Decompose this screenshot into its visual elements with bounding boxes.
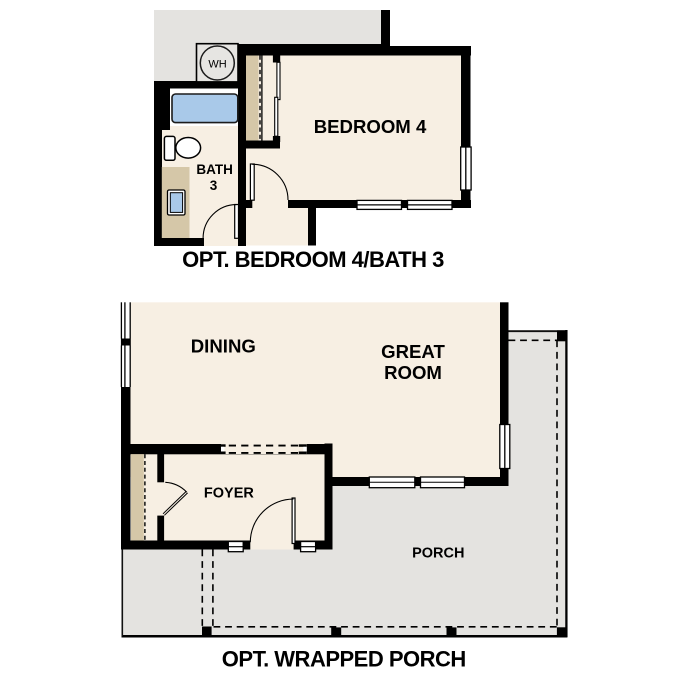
svg-text:PORCH: PORCH [412, 546, 464, 562]
svg-text:OPT. BEDROOM 4/BATH 3: OPT. BEDROOM 4/BATH 3 [182, 247, 444, 272]
svg-text:DINING: DINING [191, 336, 256, 357]
svg-text:BEDROOM 4: BEDROOM 4 [314, 116, 427, 137]
svg-text:FOYER: FOYER [204, 486, 254, 502]
svg-text:BATH: BATH [196, 162, 233, 177]
svg-text:3: 3 [210, 178, 218, 193]
svg-text:ROOM: ROOM [384, 362, 442, 383]
svg-text:OPT. WRAPPED PORCH: OPT. WRAPPED PORCH [222, 647, 466, 672]
svg-text:GREAT: GREAT [381, 341, 445, 362]
svg-text:WH: WH [208, 58, 226, 70]
